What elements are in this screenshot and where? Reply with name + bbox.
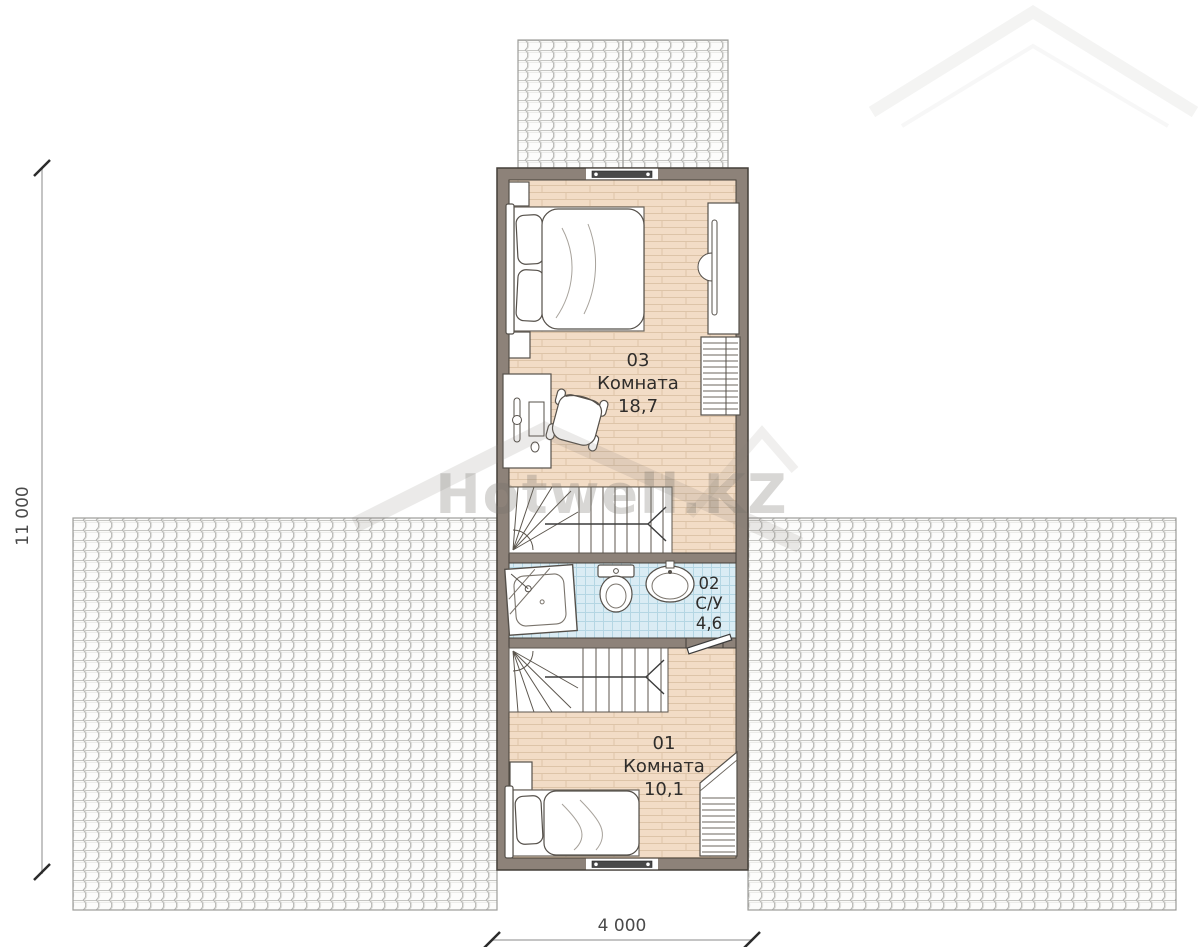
- toilet-icon: [598, 565, 634, 612]
- interior-wall-bath-room01: [509, 638, 686, 648]
- room-number: 03: [627, 350, 650, 371]
- wardrobe-icon: [701, 337, 740, 415]
- shower-icon: [505, 565, 577, 636]
- room-number: 01: [653, 733, 676, 754]
- window-icon-bottom: [586, 859, 658, 870]
- room-name: С/У: [695, 594, 722, 613]
- dimension-value-width: 4 000: [598, 916, 647, 936]
- interior-wall-room03-bath: [509, 553, 736, 563]
- room-area: 4,6: [696, 614, 722, 633]
- room-area: 10,1: [644, 779, 684, 800]
- dimension-line-vertical: 11 000: [13, 160, 50, 880]
- nightstand-icon: [509, 332, 530, 358]
- room-name: Комната: [597, 373, 679, 394]
- dimension-line-horizontal: 4 000: [484, 916, 760, 947]
- single-bed-icon: [505, 786, 639, 858]
- window-icon-top: [586, 169, 658, 180]
- nightstand-icon: [510, 762, 532, 790]
- floor-plan-canvas: Hotwell.KZ 03 Комната 18,7 02 С/У 4,6 01…: [0, 0, 1200, 947]
- watermark-text: Hotwell.KZ: [435, 463, 788, 526]
- room-name: Комната: [623, 756, 705, 777]
- double-bed-icon: [506, 204, 644, 334]
- roof-outline-watermark: [872, 12, 1195, 126]
- nightstand-icon: [509, 182, 529, 206]
- room-number: 02: [699, 574, 720, 593]
- floor-plan-drawing: Hotwell.KZ 03 Комната 18,7 02 С/У 4,6 01…: [0, 0, 1200, 947]
- roof-plane-top: [518, 40, 728, 168]
- room-area: 18,7: [618, 396, 658, 417]
- stairs-icon-lower: [509, 648, 668, 712]
- roof-plane-left: [73, 518, 497, 910]
- roof-plane-right: [748, 518, 1176, 910]
- room-02-label: 02 С/У 4,6: [695, 574, 722, 633]
- dimension-value-height: 11 000: [13, 486, 33, 545]
